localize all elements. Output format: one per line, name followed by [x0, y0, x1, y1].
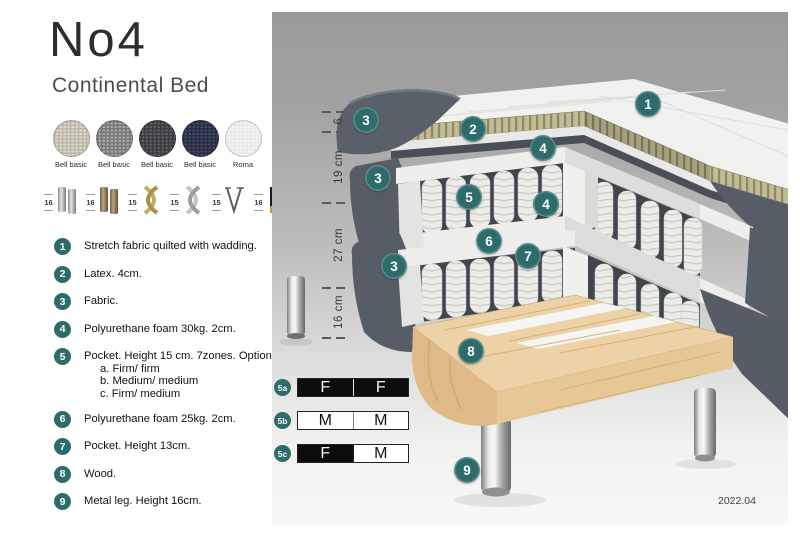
- dimension-tick: [336, 202, 345, 204]
- fabric-swatch-circle: [225, 120, 262, 157]
- legend-item-9: 9Metal leg. Height 16cm.: [54, 495, 278, 510]
- fabric-swatch-option[interactable]: Bell basicMCD36: [52, 120, 90, 170]
- leg-icon-hairpin: [223, 185, 247, 220]
- fabric-swatch-option[interactable]: Bell basicMCD43: [138, 120, 176, 170]
- callout-marker-6: 6: [476, 228, 502, 254]
- callout-marker-3: 3: [381, 253, 407, 279]
- callout-marker-1: 1: [635, 91, 661, 117]
- legend-number-badge: 8: [54, 466, 71, 483]
- leg-icon-cyl-silver: [55, 185, 79, 220]
- legend-text: Fabric.: [84, 295, 118, 310]
- dimension-label: 6: [333, 118, 345, 125]
- leg-option-hairpin[interactable]: 15: [212, 185, 247, 220]
- callout-marker-3: 3: [365, 165, 391, 191]
- legend-number-badge: 7: [54, 438, 71, 455]
- legend-text: Metal leg. Height 16cm.: [84, 495, 202, 510]
- leg-option-cyl-silver[interactable]: 16: [44, 185, 79, 220]
- firmness-bar: FM: [297, 444, 409, 463]
- dimension-tick: [322, 111, 331, 113]
- legend-item-8: 8Wood.: [54, 468, 278, 483]
- firmness-cell: F: [353, 379, 409, 396]
- leg-option-cross-silver[interactable]: 15: [170, 185, 205, 220]
- fabric-swatch-option[interactable]: Romastretch fabric: [224, 120, 262, 170]
- firmness-row-badge: 5b: [274, 412, 291, 429]
- firmness-row-badge: 5c: [274, 445, 291, 462]
- callout-marker-4: 4: [533, 191, 559, 217]
- dimension-tick: [336, 287, 345, 289]
- version-label: 2022.04: [718, 495, 756, 507]
- leg-height-label: 16: [44, 191, 53, 214]
- legend-number-badge: 2: [54, 266, 71, 283]
- dimension-label: 16 cm: [333, 295, 345, 329]
- legend-sub-option: c. Firm/ medium: [84, 388, 275, 401]
- legend-number-badge: 4: [54, 321, 71, 338]
- fabric-swatch-label: Bell basicMCD32: [98, 161, 130, 170]
- leg-icon-cross-silver: [181, 185, 205, 220]
- dimension-tick: [322, 202, 331, 204]
- firmness-row-5a: 5aFF: [274, 378, 409, 397]
- legend-text: Polyurethane foam 25kg. 2cm.: [84, 413, 236, 428]
- leg-icon-cross-gold: [139, 185, 163, 220]
- firmness-cell: M: [298, 412, 353, 429]
- callout-marker-7: 7: [515, 243, 541, 269]
- callout-marker-9: 9: [454, 457, 480, 483]
- callout-marker-2: 2: [460, 116, 486, 142]
- firmness-cell: F: [298, 445, 353, 462]
- leg-height-label: 16: [86, 191, 95, 214]
- fabric-swatch-label: Bell basicMCD74: [184, 161, 216, 170]
- firmness-row-5c: 5cFM: [274, 444, 409, 463]
- legend-sub-option: a. Firm/ firm: [84, 363, 275, 376]
- dimension-tick: [336, 111, 345, 113]
- leg-height-label: 15: [212, 191, 221, 214]
- dimension-tick: [322, 131, 331, 133]
- dimension-label: 27 cm: [333, 228, 345, 262]
- callout-marker-5: 5: [456, 184, 482, 210]
- firmness-row-5b: 5bMM: [274, 411, 409, 430]
- dimension-tick: [336, 337, 345, 339]
- fabric-swatch-circle: [96, 120, 133, 157]
- fabric-swatch-option[interactable]: Bell basicMCD74: [181, 120, 219, 170]
- leg-option-cross-gold[interactable]: 15: [128, 185, 163, 220]
- leg-icon-cyl-bronze: [97, 185, 121, 220]
- legend-text: Latex. 4cm.: [84, 268, 142, 283]
- legend-item-3: 3Fabric.: [54, 295, 278, 310]
- fabric-swatch-circle: [182, 120, 219, 157]
- firmness-bar: FF: [297, 378, 409, 397]
- legend-number-badge: 6: [54, 411, 71, 428]
- leg-height-label: 15: [170, 191, 179, 214]
- firmness-cell: M: [353, 412, 409, 429]
- dimension-tick: [322, 287, 331, 289]
- legend-number-badge: 5: [54, 348, 71, 365]
- callout-marker-3: 3: [353, 107, 379, 133]
- legend-item-7: 7Pocket. Height 13cm.: [54, 440, 278, 455]
- fabric-swatch-circle: [139, 120, 176, 157]
- dimension-tick: [322, 337, 331, 339]
- legend-number-badge: 3: [54, 293, 71, 310]
- page-title: No4: [49, 12, 148, 68]
- firmness-bar: MM: [297, 411, 409, 430]
- fabric-swatch-label: Bell basicMCD36: [55, 161, 87, 170]
- page-subtitle: Continental Bed: [52, 74, 209, 98]
- callout-marker-4: 4: [530, 135, 556, 161]
- leg-height-label: 16: [254, 191, 263, 214]
- page: No4 Continental Bed Bell basicMCD36Bell …: [0, 0, 800, 533]
- legend-text: Polyurethane foam 30kg. 2cm.: [84, 323, 236, 338]
- leg-options-row: 161615151516: [44, 185, 289, 220]
- callout-marker-8: 8: [458, 338, 484, 364]
- firmness-table: 5aFF5bMM5cFM: [274, 378, 409, 477]
- legend-item-1: 1Stretch fabric quilted with wadding.: [54, 240, 278, 255]
- leg-height-label: 15: [128, 191, 137, 214]
- legend-item-4: 4Polyurethane foam 30kg. 2cm.: [54, 323, 278, 338]
- fabric-swatch-row: Bell basicMCD36Bell basicMCD32Bell basic…: [52, 120, 262, 170]
- legend-text: Stretch fabric quilted with wadding.: [84, 240, 257, 255]
- fabric-swatch-label: Bell basicMCD43: [141, 161, 173, 170]
- legend-text: Wood.: [84, 468, 116, 483]
- firmness-cell: M: [353, 445, 409, 462]
- legend-number-badge: 1: [54, 238, 71, 255]
- firmness-row-badge: 5a: [274, 379, 291, 396]
- legend-text: Pocket. Height 13cm.: [84, 440, 190, 455]
- legend-number-badge: 9: [54, 493, 71, 510]
- legend-item-2: 2Latex. 4cm.: [54, 268, 278, 283]
- leg-option-cyl-bronze[interactable]: 16: [86, 185, 121, 220]
- firmness-cell: F: [298, 379, 353, 396]
- legend-text: Pocket. Height 15 cm. 7zones. Option:a. …: [84, 350, 275, 400]
- dimension-label: 19 cm: [333, 150, 345, 184]
- fabric-swatch-circle: [53, 120, 90, 157]
- legend-list: 1Stretch fabric quilted with wadding.2La…: [54, 240, 278, 523]
- legend-item-6: 6Polyurethane foam 25kg. 2cm.: [54, 413, 278, 428]
- dimension-tick: [336, 131, 345, 133]
- fabric-swatch-label: Romastretch fabric: [233, 161, 253, 170]
- fabric-swatch-option[interactable]: Bell basicMCD32: [95, 120, 133, 170]
- legend-sub-option: b. Medium/ medium: [84, 375, 275, 388]
- legend-item-5: 5Pocket. Height 15 cm. 7zones. Option:a.…: [54, 350, 278, 400]
